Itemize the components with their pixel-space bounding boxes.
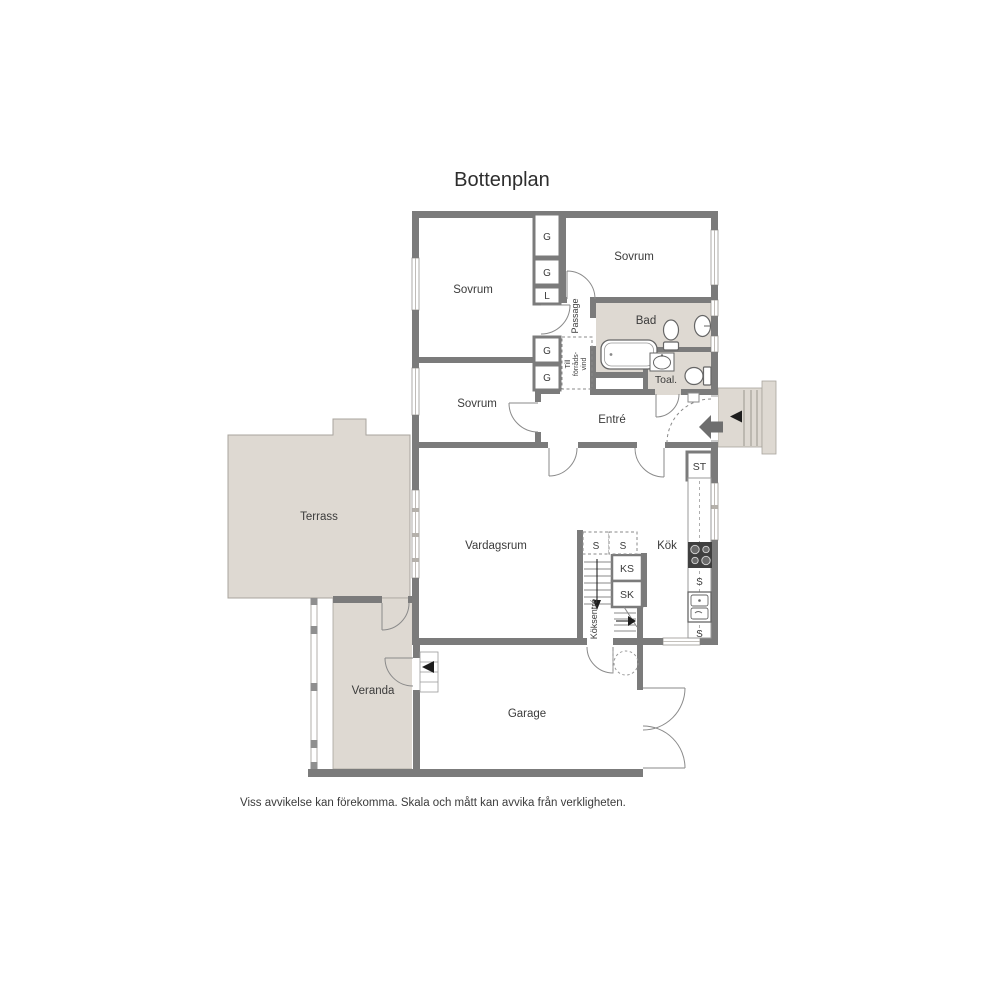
disclaimer: Viss avvikelse kan förekomma. Skala och … [240, 797, 626, 809]
bathtub-icon [601, 340, 657, 369]
kitchen-sink-icon [688, 592, 711, 622]
attic-hatch-label-3: vind [581, 357, 588, 370]
room-label-sovrum-middle: Sovrum [457, 398, 497, 410]
closet-label-g-tall: G [543, 232, 551, 243]
toal-toilet-icon [685, 367, 711, 385]
closet-label-st: ST [693, 461, 707, 473]
room-label-veranda: Veranda [352, 685, 395, 697]
closet-label-g-mid-lower: G [543, 373, 551, 384]
room-label-sovrum-top-left: Sovrum [453, 284, 493, 296]
floor-plan-svg: Bottenplan Sovrum Sovrum Sovrum Bad Toal… [0, 0, 992, 992]
room-label-vardagsrum: Vardagsrum [465, 540, 527, 552]
kitchen-label-s-lower: S [696, 629, 703, 640]
veranda-area [311, 598, 414, 769]
entry-step-slab [762, 381, 776, 454]
room-label-bad: Bad [636, 315, 656, 327]
stair-label-s-right: S [620, 541, 627, 552]
room-label-terrass: Terrass [300, 511, 338, 523]
stair-label-s-left: S [593, 541, 600, 552]
stove-icon [688, 542, 712, 568]
closet-label-g-upper: G [543, 268, 551, 279]
room-label-passage: Passage [570, 298, 580, 333]
wardrobe-dashed-boxes [583, 532, 637, 554]
page-title: Bottenplan [454, 169, 550, 191]
room-label-sovrum-top-right: Sovrum [614, 251, 654, 263]
floorplan-page: Bottenplan Sovrum Sovrum Sovrum Bad Toal… [0, 0, 992, 992]
terrace [228, 419, 410, 598]
room-label-entre: Entré [598, 414, 626, 426]
garage-veranda-steps [420, 652, 438, 692]
attic-hatch-label-2: förråds- [572, 351, 580, 376]
koksentre-label: Köksentré [589, 599, 599, 640]
room-label-toal: Toal. [655, 374, 677, 386]
bad-toilet-icon [664, 320, 679, 350]
room-label-kok: Kök [657, 540, 677, 552]
closet-label-g-mid-upper: G [543, 346, 551, 357]
kitchen-label-s-upper: S [696, 577, 703, 588]
attic-hatch-label-1: Till [565, 359, 572, 368]
stair-label-sk: SK [620, 589, 634, 601]
toal-sink-icon [650, 353, 674, 371]
bad-sink-icon [695, 316, 711, 337]
room-label-garage: Garage [508, 708, 546, 720]
entry-porch [711, 381, 776, 454]
stair-label-ks: KS [620, 563, 634, 575]
closet-label-l: L [544, 291, 550, 302]
